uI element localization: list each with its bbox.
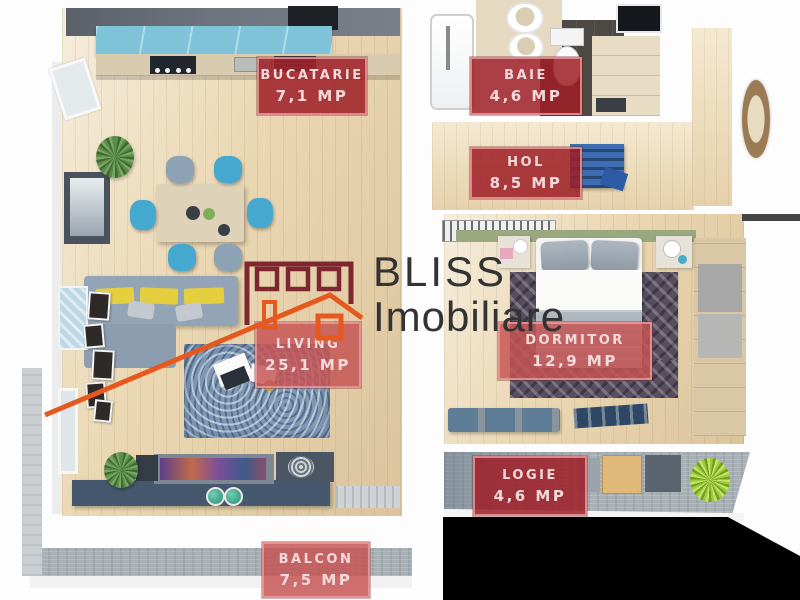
bed-bench	[448, 408, 560, 432]
toilet-tank	[550, 28, 584, 46]
stove-knob	[176, 68, 181, 73]
room-name: BAIE	[504, 68, 548, 83]
dining-chair	[214, 156, 242, 183]
dining-table	[156, 184, 244, 242]
nightstand-decor	[500, 248, 513, 259]
room-name: HOL	[507, 155, 545, 170]
room-name: LOGIE	[502, 468, 558, 483]
decor-pot	[224, 487, 243, 506]
dining-chair	[168, 244, 196, 271]
potted-plant	[96, 136, 134, 178]
kitchen-cabinets	[96, 26, 332, 56]
room-name: LIVING	[276, 337, 341, 352]
nightstand-lamp	[663, 240, 681, 258]
room-label-hol: HOL 8,5 MP	[470, 147, 582, 199]
room-area: 7,5 MP	[280, 571, 353, 589]
dining-chair	[247, 198, 273, 228]
gray-pillow	[127, 300, 155, 319]
loggia-table	[602, 455, 642, 494]
room-area: 7,1 MP	[276, 87, 349, 105]
potted-plant	[104, 452, 138, 488]
picture-frame	[91, 349, 115, 380]
room-label-living: LIVING 25,1 MP	[255, 322, 361, 388]
sideboard-top	[70, 178, 104, 236]
radiator-bench	[336, 486, 400, 508]
balcony-floor-side	[22, 368, 42, 576]
shower-bar	[446, 26, 450, 70]
apartment-floor-plan: BUCATARIE 7,1 MP BAIE 4,6 MP HOL 8,5 MP …	[0, 0, 800, 600]
loggia-chair	[645, 455, 681, 492]
stove-knob	[155, 68, 160, 73]
stove-knob	[165, 68, 170, 73]
dining-chair	[166, 156, 194, 183]
bath-mat	[596, 98, 626, 112]
bed-pillow	[590, 240, 639, 272]
wardrobe-door	[698, 314, 742, 358]
bed-sheet	[536, 270, 642, 314]
room-area: 4,6 MP	[494, 487, 567, 505]
room-label-logie: LOGIE 4,6 MP	[473, 456, 587, 516]
exterior-void	[443, 517, 800, 600]
room-label-baie: BAIE 4,6 MP	[470, 57, 582, 115]
table-plate	[203, 208, 215, 220]
bathroom-window	[616, 4, 662, 33]
tv-screen	[160, 458, 266, 480]
picture-frame	[93, 399, 113, 423]
wardrobe-door	[698, 264, 742, 312]
bedroom-wall	[742, 214, 800, 221]
room-area: 12,9 MP	[532, 352, 618, 370]
room-area: 4,6 MP	[490, 87, 563, 105]
room-name: BUCATARIE	[260, 68, 363, 83]
round-mirror	[742, 80, 770, 158]
room-name: BALCON	[279, 552, 354, 567]
table-plate	[218, 224, 230, 236]
room-name: DORMITOR	[525, 333, 625, 348]
room-label-bucatarie: BUCATARIE 7,1 MP	[257, 57, 367, 115]
dining-chair	[130, 200, 156, 230]
table-plate	[186, 206, 200, 220]
speaker	[136, 455, 158, 481]
room-label-dormitor: DORMITOR 12,9 MP	[498, 322, 652, 380]
decor-pot	[206, 487, 225, 506]
room-area: 8,5 MP	[490, 174, 563, 192]
hall-floor-strip	[692, 28, 732, 206]
bed-pillow	[540, 240, 589, 272]
sink-basin	[506, 2, 544, 34]
picture-frame	[83, 323, 105, 349]
decor-plate	[288, 456, 314, 478]
room-label-balcon: BALCON 7,5 MP	[262, 542, 370, 598]
bathtub	[430, 14, 474, 110]
picture-frame	[87, 291, 111, 320]
loggia-plant	[690, 458, 730, 502]
nightstand-decor	[678, 255, 687, 264]
nightstand-lamp	[513, 239, 528, 254]
living-window	[58, 388, 78, 474]
dining-chair	[214, 244, 242, 271]
room-area: 25,1 MP	[265, 356, 351, 374]
yellow-cushion	[184, 287, 225, 304]
stove-knob	[186, 68, 191, 73]
